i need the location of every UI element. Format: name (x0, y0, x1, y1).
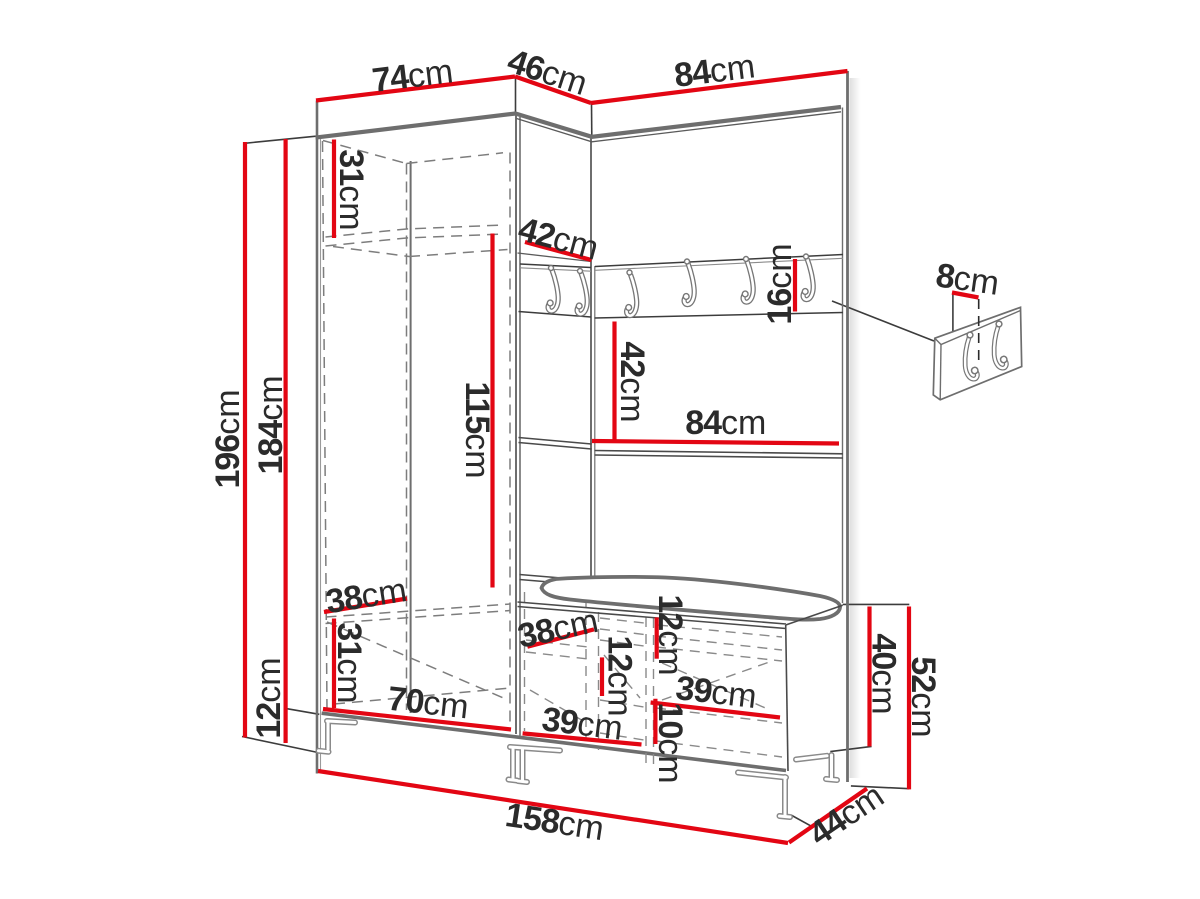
svg-text:40cm: 40cm (865, 633, 903, 714)
svg-text:31cm: 31cm (332, 149, 370, 230)
svg-text:196cm: 196cm (209, 389, 247, 488)
svg-text:31cm: 31cm (330, 622, 368, 703)
svg-text:16cm: 16cm (761, 243, 799, 324)
svg-text:12cm: 12cm (651, 594, 689, 675)
svg-text:42cm: 42cm (613, 341, 651, 422)
svg-text:184cm: 184cm (252, 375, 290, 474)
svg-text:10cm: 10cm (651, 702, 689, 783)
svg-text:84cm: 84cm (685, 404, 766, 442)
svg-text:115cm: 115cm (458, 381, 496, 478)
svg-text:12cm: 12cm (601, 635, 639, 716)
svg-text:52cm: 52cm (904, 656, 942, 737)
svg-text:12cm: 12cm (250, 657, 288, 738)
